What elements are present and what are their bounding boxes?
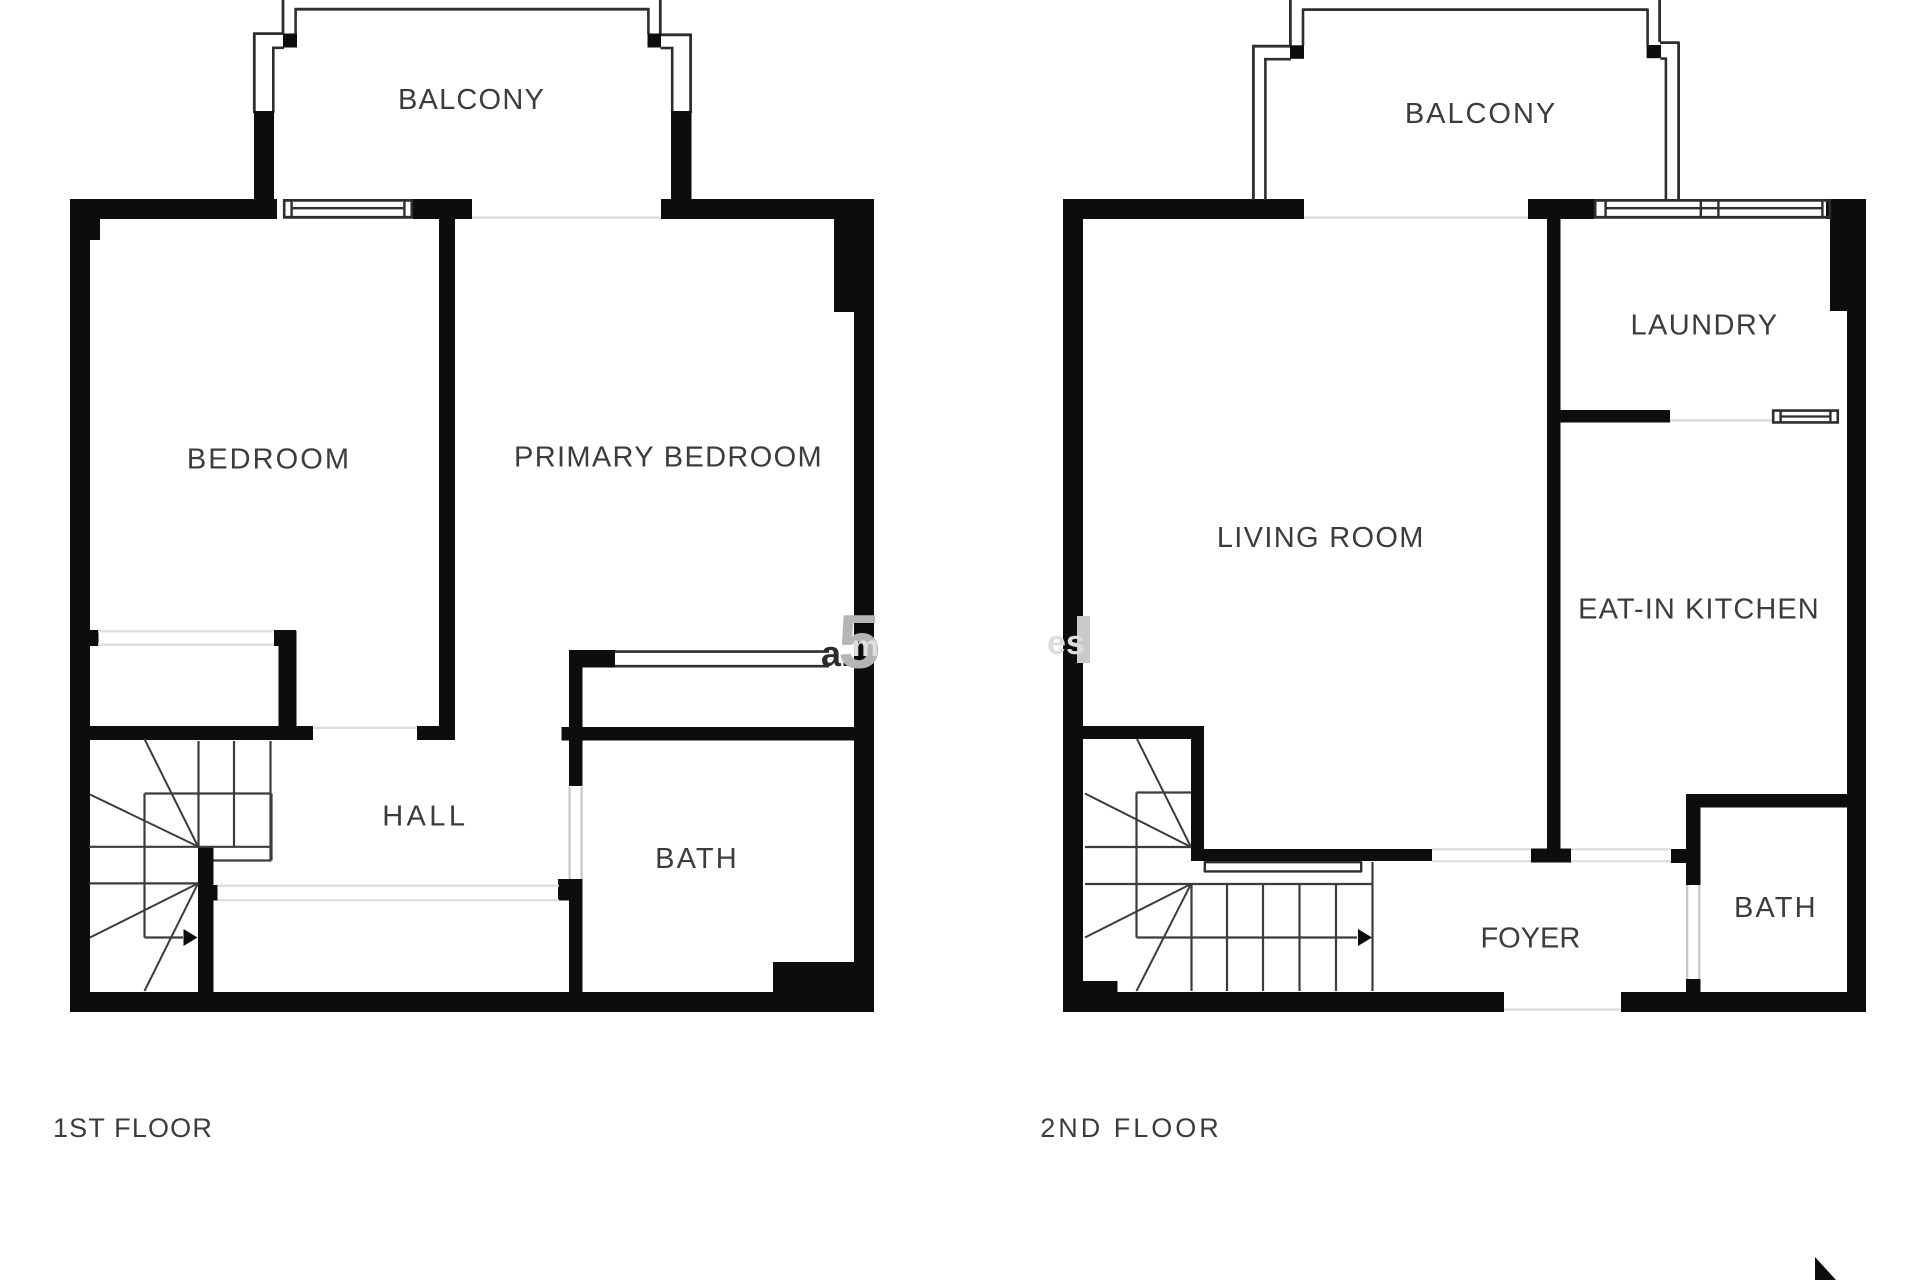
svg-text:FOYER: FOYER	[1480, 923, 1580, 955]
svg-text:m: m	[852, 630, 879, 663]
svg-text:EAT-IN KITCHEN: EAT-IN KITCHEN	[1578, 594, 1820, 626]
svg-text:BALCONY: BALCONY	[1405, 98, 1557, 130]
svg-text:BALCONY: BALCONY	[398, 84, 545, 116]
svg-text:LIVING ROOM: LIVING ROOM	[1217, 522, 1425, 554]
svg-text:HALL: HALL	[382, 800, 468, 832]
svg-text:BATH: BATH	[655, 843, 739, 875]
svg-text:1ST FLOOR: 1ST FLOOR	[53, 1113, 213, 1143]
svg-text:BATH: BATH	[1734, 892, 1818, 924]
svg-text:2ND FLOOR: 2ND FLOOR	[1040, 1113, 1222, 1143]
svg-text:LAUNDRY: LAUNDRY	[1630, 310, 1778, 342]
svg-text:BEDROOM: BEDROOM	[187, 443, 351, 475]
svg-text:es: es	[1047, 624, 1085, 662]
svg-text:PRIMARY BEDROOM: PRIMARY BEDROOM	[514, 441, 823, 473]
